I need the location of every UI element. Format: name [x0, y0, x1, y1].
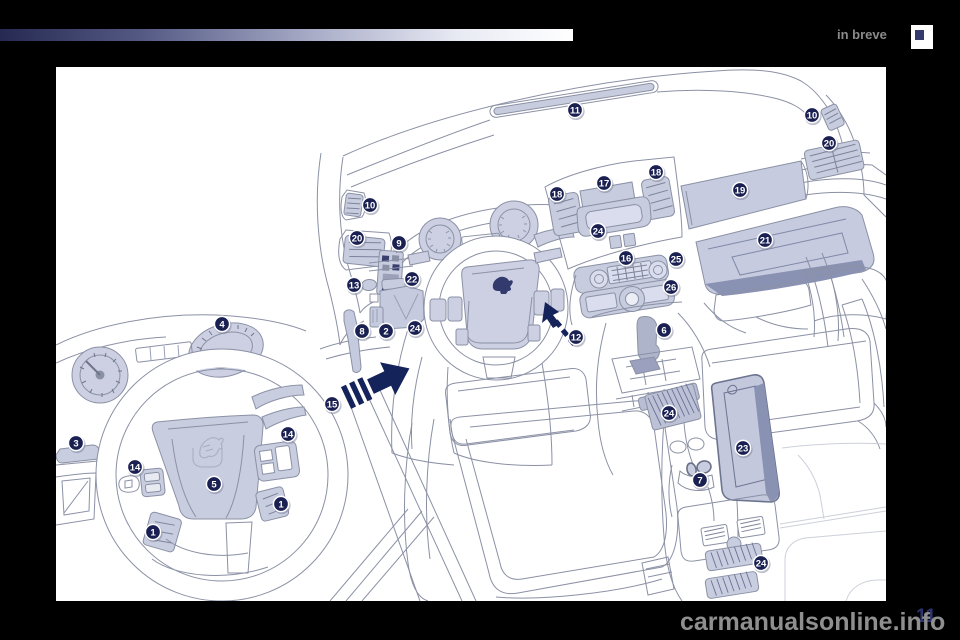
svg-text:15: 15: [327, 399, 338, 410]
svg-text:14: 14: [130, 462, 141, 473]
svg-text:22: 22: [407, 274, 418, 285]
svg-text:7: 7: [697, 475, 702, 486]
svg-text:18: 18: [552, 189, 563, 200]
svg-text:5: 5: [211, 479, 217, 490]
svg-text:24: 24: [664, 408, 675, 419]
svg-text:12: 12: [571, 332, 582, 343]
svg-text:16: 16: [621, 253, 632, 264]
svg-text:3: 3: [73, 438, 78, 449]
svg-text:14: 14: [283, 429, 294, 440]
svg-text:2: 2: [383, 326, 388, 337]
svg-text:17: 17: [599, 178, 610, 189]
svg-text:1: 1: [150, 527, 156, 538]
svg-text:8: 8: [359, 326, 364, 337]
svg-text:11: 11: [570, 105, 581, 116]
svg-text:9: 9: [396, 238, 401, 249]
svg-text:23: 23: [738, 443, 749, 454]
svg-text:13: 13: [349, 280, 360, 291]
svg-text:26: 26: [666, 282, 677, 293]
svg-text:19: 19: [735, 185, 746, 196]
svg-text:10: 10: [365, 200, 376, 211]
svg-text:25: 25: [671, 254, 682, 265]
svg-text:21: 21: [760, 235, 771, 246]
svg-text:6: 6: [661, 325, 666, 336]
svg-text:10: 10: [807, 110, 818, 121]
svg-text:24: 24: [756, 558, 767, 569]
svg-text:24: 24: [593, 226, 604, 237]
svg-text:24: 24: [410, 323, 421, 334]
svg-text:1: 1: [278, 499, 284, 510]
svg-text:20: 20: [824, 138, 835, 149]
svg-text:4: 4: [219, 319, 225, 330]
svg-text:18: 18: [651, 167, 662, 178]
svg-text:20: 20: [352, 233, 363, 244]
